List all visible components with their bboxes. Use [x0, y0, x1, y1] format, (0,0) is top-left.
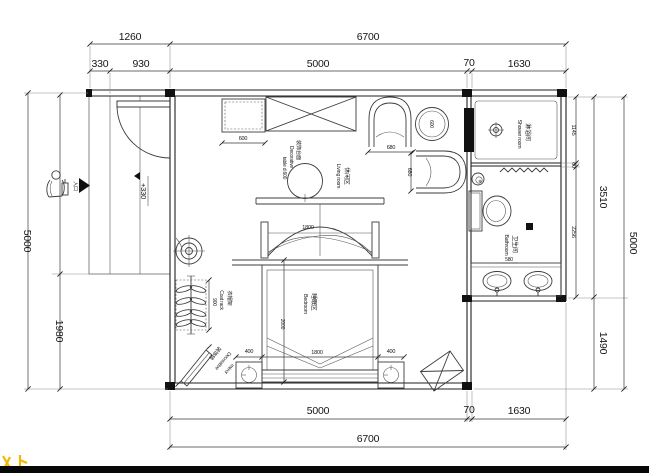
shower-label-zh: 淋浴间	[524, 123, 532, 141]
cabinet-dim: 600	[239, 136, 248, 142]
luggage-rack	[421, 351, 464, 391]
dim-top: 1260 6700 330 930 5000 70 1630	[87, 31, 568, 94]
bathroom-label-zh: 卫生间	[511, 235, 519, 253]
coat-rack-dim: 900	[211, 298, 217, 306]
dim-top-5000: 5000	[307, 58, 330, 70]
dim-right-1145: 1145	[570, 124, 576, 135]
bathroom-label-en: Bathroom	[503, 235, 509, 256]
bathroom-sliding-door	[464, 108, 474, 152]
dim-bottom: 5000 70 1630 6700	[167, 303, 568, 450]
person-icon	[47, 171, 68, 197]
bed-width-dim: 1800	[311, 350, 323, 356]
decor-table-label-en2: table d.600	[281, 157, 287, 180]
dim-top-930: 930	[133, 58, 150, 70]
vanity	[471, 263, 561, 296]
chair-width-dim: 680	[387, 145, 396, 151]
dim-left-overall: 5000	[21, 230, 33, 253]
entrance-label: 入口	[72, 181, 78, 191]
floor-plan-drawing: +330 入口	[0, 0, 649, 473]
decorative-mirror	[175, 344, 212, 386]
coat-rack-label-en: Coat rack	[218, 290, 224, 310]
cabinet	[222, 99, 265, 132]
decor-table-label-zh: 装饰台面	[295, 140, 303, 160]
level-value: +330	[139, 183, 148, 199]
dim-bottom-overall: 6700	[357, 433, 380, 445]
floor-plan-canvas: +330 入口	[0, 0, 649, 473]
bed	[232, 260, 408, 382]
footer-bar	[0, 466, 649, 473]
dim-right-upper: 3510	[597, 186, 609, 209]
living-label-zh: 休闲区	[343, 167, 351, 185]
dim-top-70: 70	[463, 57, 475, 69]
side-table-dim: 600	[428, 120, 434, 128]
armchair-1	[369, 97, 411, 147]
stool-right-dim: 400	[387, 349, 396, 355]
dim-right-overall: 5000	[627, 232, 639, 255]
bedroom-label-zh: 睡眠区	[310, 293, 318, 311]
coat-rack-label-zh: 衣帽架	[226, 291, 234, 306]
dim-bottom-5000: 5000	[307, 405, 330, 417]
dim-bottom-70: 70	[463, 404, 475, 416]
dim-bottom-1630: 1630	[508, 405, 531, 417]
entry-balcony: +330	[89, 96, 170, 274]
bed-canopy	[256, 198, 384, 258]
decorative-table	[288, 164, 323, 203]
dim-right-2256: 2256	[570, 226, 576, 238]
ceiling-light-icon	[173, 235, 205, 267]
bed-length-dim: 2000	[279, 319, 285, 330]
living-label-en: Living room	[335, 164, 341, 189]
toilet	[469, 191, 511, 231]
dim-right-60: 60	[570, 162, 576, 168]
dim-top-1630: 1630	[508, 58, 531, 70]
shower-label-en: Shower room	[516, 120, 522, 149]
bedroom-label-en: Bedroom	[302, 294, 308, 314]
coat-rack	[176, 276, 207, 334]
shower-room	[475, 101, 557, 159]
wc-dim: 580	[505, 257, 513, 263]
chair-depth-dim: 680	[406, 168, 412, 177]
stool-left-dim: 400	[245, 349, 254, 355]
dim-top-330: 330	[92, 58, 109, 70]
wall-niche	[526, 223, 533, 230]
toilet-paper-icon	[472, 173, 484, 185]
floor-drain-icon	[488, 122, 504, 138]
dim-top-overall: 6700	[357, 31, 380, 43]
entrance-arrow-icon	[79, 178, 90, 193]
decor-table-label-en1: Decorative	[288, 146, 294, 168]
dim-right-lower: 1490	[597, 332, 609, 355]
stool-left	[236, 362, 262, 388]
towel-rail	[500, 168, 548, 172]
dim-top-balcony: 1260	[119, 31, 142, 43]
dim-right: 1145 60 2256 3510 1490 5000	[474, 94, 639, 391]
stool-right	[378, 362, 404, 388]
canopy-dim: 1800	[302, 225, 314, 231]
armchair-2	[416, 151, 466, 193]
dim-left-lower: 1980	[53, 320, 65, 343]
tv-console	[266, 97, 356, 131]
